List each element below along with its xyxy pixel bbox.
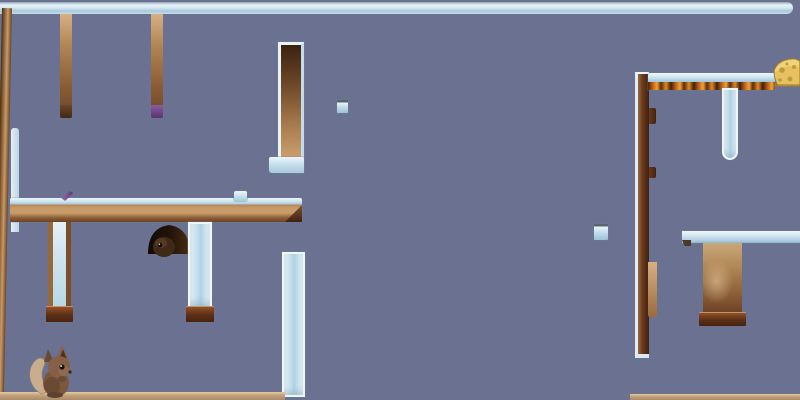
small-ice-cube-left [337, 100, 348, 113]
hanging-wood-pillar-a [60, 14, 72, 118]
main-wood-platform [10, 198, 302, 222]
cheese-hole [779, 67, 785, 73]
ice-box-item [234, 191, 247, 201]
tall-ice-column [282, 252, 305, 397]
cheese-hole [778, 78, 782, 82]
creature-eye [158, 243, 162, 247]
cheese-shadow-edge [774, 84, 800, 87]
right-wood-block [703, 243, 742, 313]
platform-leg-right-foot [186, 306, 214, 322]
cheese-hole [792, 65, 796, 69]
platform-leg-left-foot [46, 306, 73, 322]
fire-underside-platform [648, 73, 775, 90]
right-wood-block-base [699, 312, 746, 326]
top-ice-bar [0, 2, 793, 14]
mouse-nose [68, 370, 71, 373]
right-floor [630, 394, 800, 400]
mouse-character [26, 340, 76, 398]
mouse-eye [59, 364, 64, 369]
ice-framed-wood-column [278, 42, 304, 173]
wood-nub-upper [649, 108, 656, 124]
hanging-wood-pillar-purple-tip [151, 14, 163, 118]
platform-leg-right [188, 222, 212, 308]
cheese-hole [788, 77, 793, 82]
mouse-eye-glint [60, 365, 62, 367]
right-dark-wood-pillar [635, 72, 649, 358]
light-wood-strip [648, 262, 657, 317]
right-ice-shelf [682, 231, 800, 243]
game-viewport[interactable] [0, 0, 800, 400]
creature-eye-glint [159, 243, 161, 245]
wood-nub-lower [649, 167, 656, 178]
mouse-arm [58, 376, 66, 382]
burrow-with-creature [147, 222, 191, 254]
mouse-feet [47, 392, 63, 398]
small-ice-cube-right [594, 224, 608, 240]
cheese-hole [786, 63, 789, 66]
cheese-goal [773, 55, 800, 87]
ice-column-foot [269, 157, 304, 173]
platform-leg-left [48, 222, 71, 308]
hanging-ice-pillar [722, 88, 738, 160]
